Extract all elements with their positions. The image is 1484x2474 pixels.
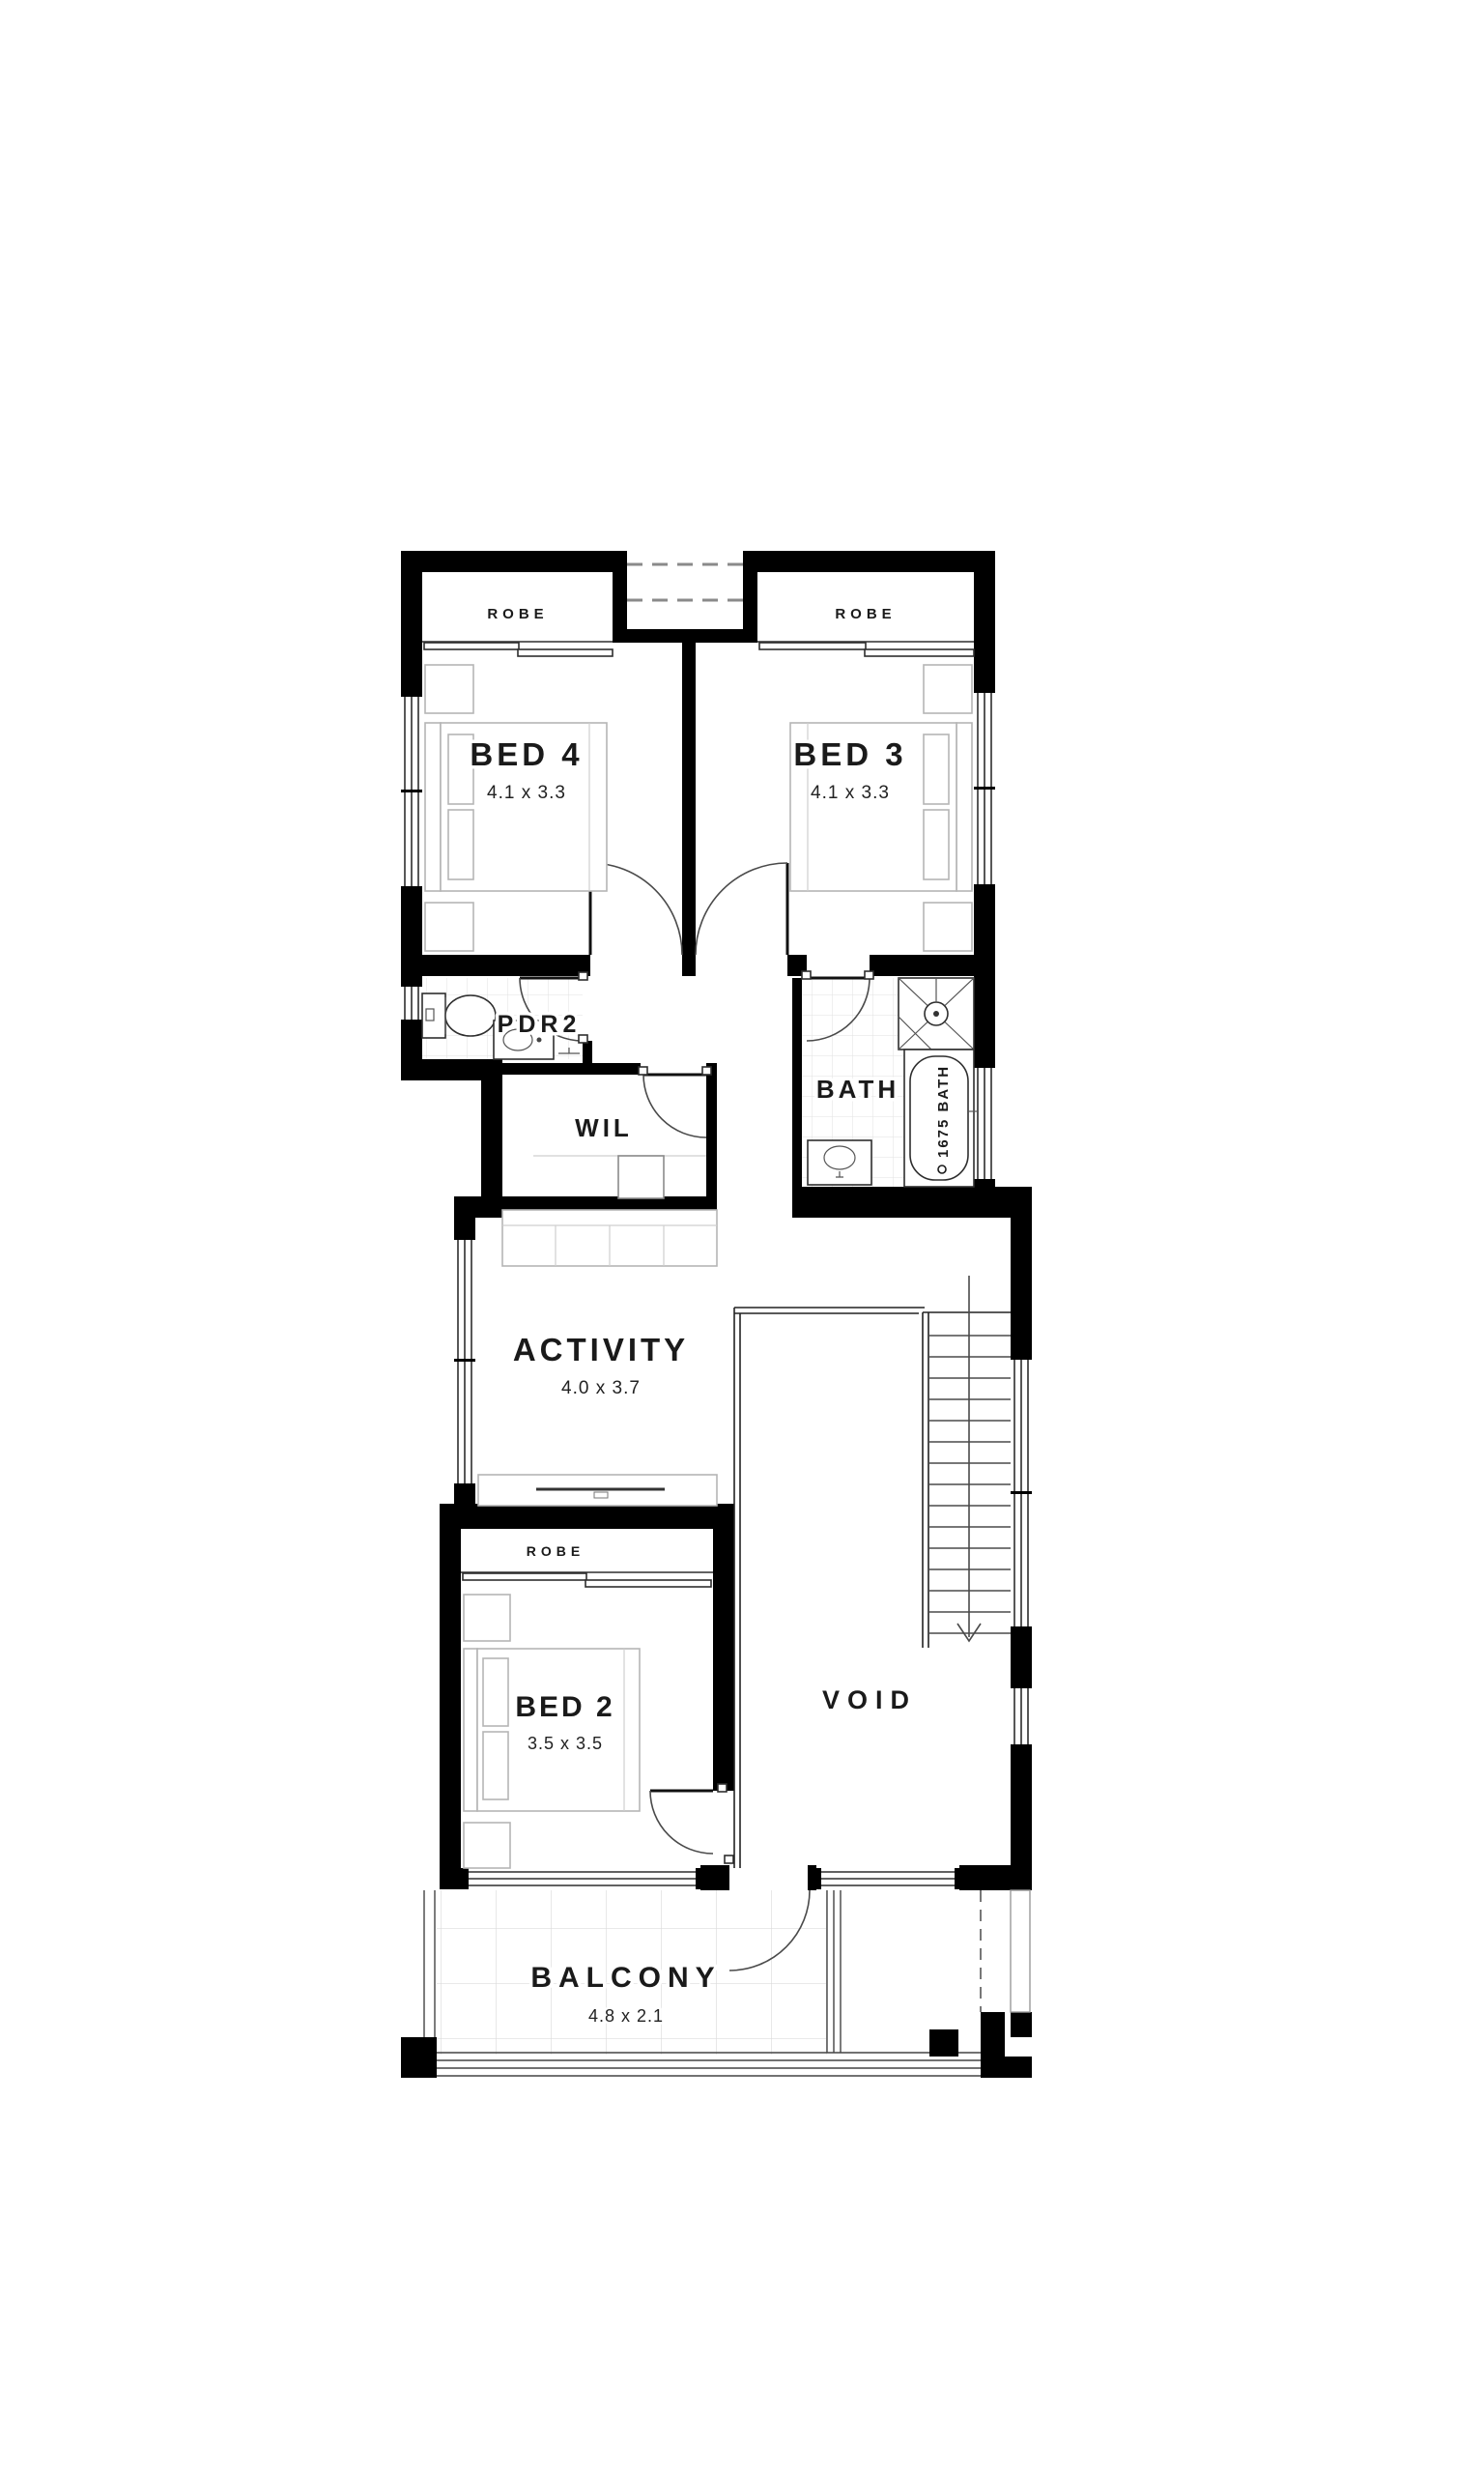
robe-bed2-label: ROBE [527,1543,585,1559]
bed2-label: BED 2 [515,1691,614,1723]
activity-label: ACTIVITY [513,1332,689,1367]
room-bed2 [461,1582,713,1868]
bed3-label: BED 3 [793,736,906,772]
ceiling-opening-dashed-lines [627,564,743,600]
bath-label: BATH [816,1075,899,1104]
room-bed3 [696,653,974,955]
void-window [1011,1683,1032,1749]
bed4-window [401,692,422,891]
bed3-window [974,688,995,889]
bath-window [974,1063,995,1184]
stair-window [1011,1355,1032,1631]
balcony-dims: 4.8 x 2.1 [588,2006,664,2026]
room-bed4 [422,653,682,955]
robe-bed3-label: ROBE [835,606,896,622]
bed3-dims: 4.1 x 3.3 [811,783,890,803]
bed2-dims: 3.5 x 3.5 [528,1734,603,1753]
wil-label: WIL [575,1113,633,1142]
robe-bed4-label: ROBE [487,606,548,622]
balcony-label: BALCONY [530,1962,721,1994]
void-south-window [816,1868,959,1889]
bed4-label: BED 4 [470,736,583,772]
pdr2-window [401,982,422,1024]
side-wall-outline [1011,1890,1030,2012]
activity-window [454,1235,475,1488]
bed4-dims: 4.1 x 3.3 [487,783,566,803]
floor-plan-page: 1675 BATH ROBE ROBE BED 4 4.1 x 3.3 BED … [0,0,1484,2474]
room-void [740,1314,1011,1868]
activity-dims: 4.0 x 3.7 [561,1378,641,1398]
balcony-pier [929,2029,958,2057]
pdr2-label: PDR2 [498,1011,582,1038]
bed2-south-window [464,1868,700,1889]
floor-plan-drawing: 1675 BATH ROBE ROBE BED 4 4.1 x 3.3 BED … [0,0,1484,2474]
room-robe-bed2 [461,1529,713,1572]
void-label: VOID [822,1685,917,1714]
